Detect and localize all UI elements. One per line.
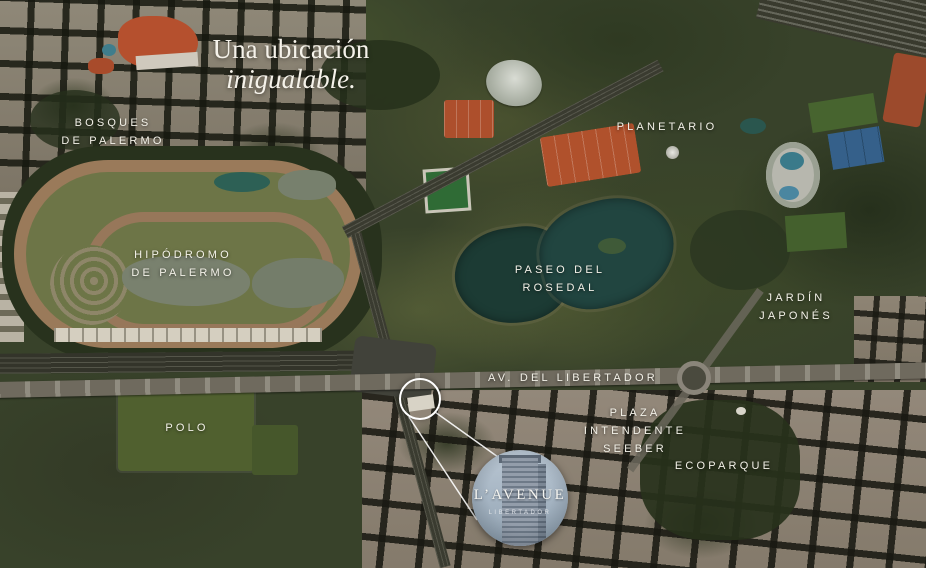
- label-av-del-libertador: AV. DEL LIBERTADOR: [488, 369, 658, 387]
- clay-court-small: [88, 58, 114, 74]
- hipodromo-training-rings: [50, 245, 130, 325]
- location-marker-circle: [399, 378, 441, 420]
- infield-pond-teal: [214, 172, 270, 192]
- label-plaza-intendente-seeber: PLAZA INTENDENTE SEEBER: [584, 404, 686, 458]
- title-line-1: Una ubicación: [213, 34, 370, 64]
- small-pond: [740, 118, 766, 134]
- title-line-2: inigualable.: [213, 64, 370, 94]
- lake-island: [598, 238, 626, 254]
- lavenue-badge: L’AVENUE LIBERTADOR: [472, 450, 568, 546]
- clay-courts-center: [444, 100, 494, 138]
- label-jardin-japones: JARDÍN JAPONÉS: [759, 289, 833, 325]
- roundabout: [677, 361, 711, 395]
- page-title: Una ubicación inigualable.: [213, 34, 370, 94]
- label-hipodromo-de-palermo: HIPÓDROMO DE PALERMO: [131, 246, 234, 282]
- railway-west: [0, 350, 396, 374]
- satellite-map: Una ubicación inigualable. BOSQUES DE PA…: [0, 0, 926, 568]
- swimming-pool: [102, 44, 116, 56]
- label-polo: POLO: [165, 419, 208, 437]
- polo-field-secondary: [252, 425, 298, 475]
- blue-tennis-courts: [828, 126, 885, 170]
- label-planetario: PLANETARIO: [617, 118, 718, 136]
- label-ecoparque: ECOPARQUE: [675, 457, 773, 475]
- red-roofs-east: [882, 52, 926, 128]
- japones-pond-upper: [780, 152, 804, 170]
- badge-title: L’AVENUE: [472, 487, 568, 504]
- woods-japones: [690, 210, 790, 290]
- label-paseo-del-rosedal: PASEO DEL ROSEDAL: [515, 261, 605, 297]
- ecoparque-dome: [736, 407, 746, 415]
- infield-pond-northeast: [278, 170, 336, 200]
- badge-subtitle: LIBERTADOR: [472, 510, 568, 516]
- japones-pond-lower: [779, 186, 799, 200]
- sports-field-south: [785, 212, 847, 252]
- hipodromo-grandstand: [54, 328, 322, 342]
- planetario-dome: [666, 146, 679, 159]
- label-bosques-de-palermo: BOSQUES DE PALERMO: [61, 114, 164, 150]
